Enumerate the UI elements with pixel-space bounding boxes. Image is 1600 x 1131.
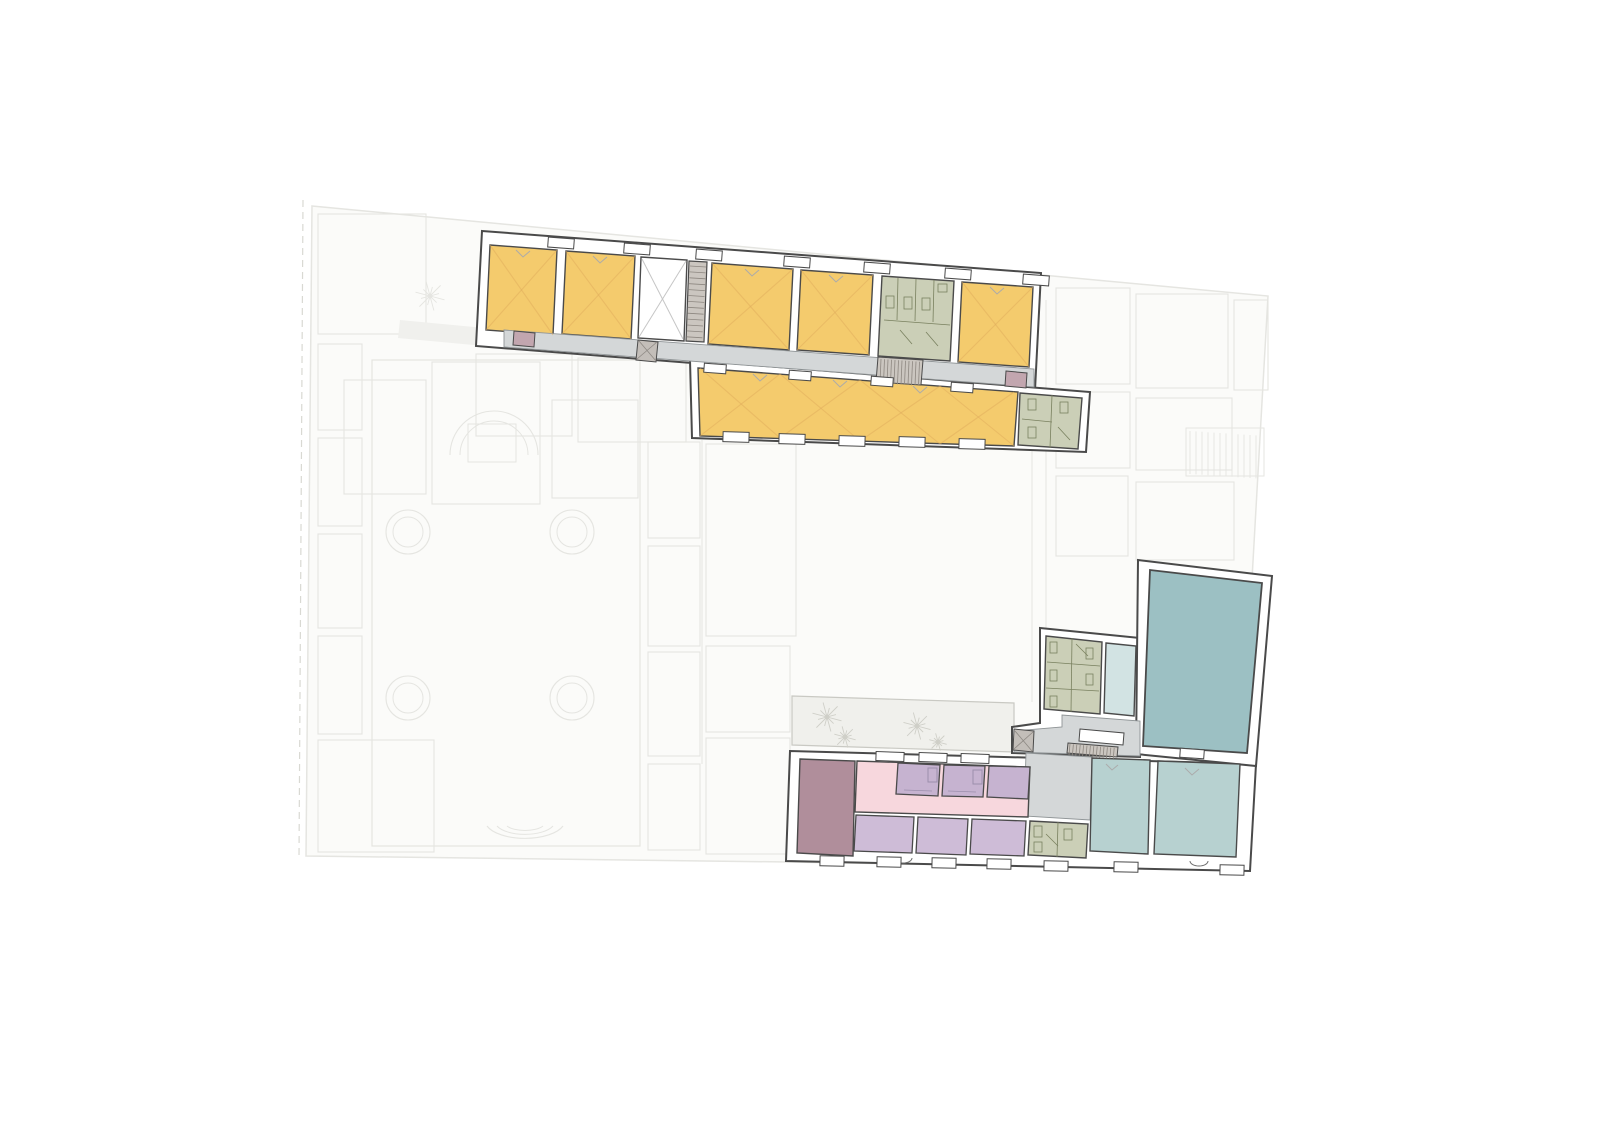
property-dash-line (299, 200, 303, 858)
window-bay (864, 262, 891, 274)
window-bay (877, 857, 901, 868)
window-bay (1023, 274, 1050, 286)
south-terrace (792, 696, 1014, 752)
window-bay (624, 243, 651, 255)
mauve-cell-west (513, 331, 535, 347)
window-bay (696, 249, 723, 261)
window-bay (961, 754, 989, 764)
room-purple-b2 (916, 817, 968, 855)
mauve-cell-east (1005, 371, 1027, 388)
window-bay (959, 439, 985, 450)
room-purple-b3 (970, 819, 1026, 856)
corridor-vertical (1024, 753, 1092, 820)
window-bay (932, 858, 956, 869)
window-bay (779, 434, 805, 445)
window-bay (839, 436, 865, 447)
room-teal-bottom-2 (1154, 761, 1240, 857)
window-bay (899, 437, 925, 448)
room-light-blue (1104, 643, 1136, 716)
window-bay (1114, 862, 1138, 873)
window-bay (951, 382, 974, 393)
window-bay (919, 753, 947, 763)
window-bay (784, 256, 811, 268)
room-purple-b1 (854, 815, 914, 853)
window-bay (1220, 865, 1244, 876)
room-plum (797, 759, 855, 856)
window-bay (789, 370, 812, 381)
window-bay (1180, 748, 1205, 759)
window-bay (723, 432, 749, 443)
floor-plan-svg (0, 0, 1600, 1131)
window-bay (704, 363, 727, 374)
window-bay (987, 859, 1011, 870)
room-teal-bottom-1 (1090, 758, 1150, 854)
room-purple-3 (987, 766, 1030, 799)
window-bay (548, 237, 575, 249)
window-bay (820, 856, 844, 867)
window-bay (876, 752, 904, 762)
window-bay (1044, 861, 1068, 872)
window-bay (871, 376, 894, 387)
hall-room-large-teal (1143, 570, 1262, 753)
window-bay (945, 268, 972, 280)
floor-plan-canvas (0, 0, 1600, 1131)
